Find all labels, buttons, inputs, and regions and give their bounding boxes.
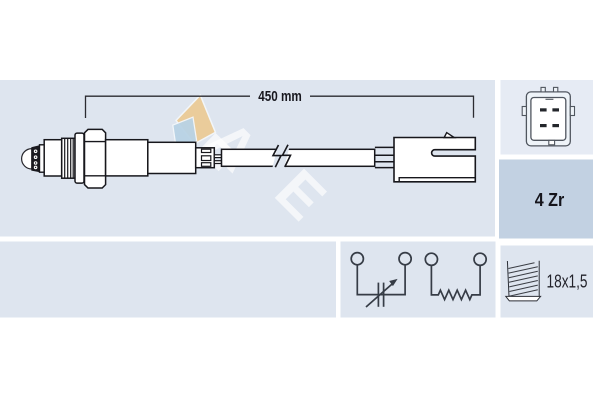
svg-text:18x1,5: 18x1,5 xyxy=(547,271,588,292)
svg-text:450 mm: 450 mm xyxy=(258,89,302,105)
svg-text:4 Zr: 4 Zr xyxy=(535,189,565,210)
